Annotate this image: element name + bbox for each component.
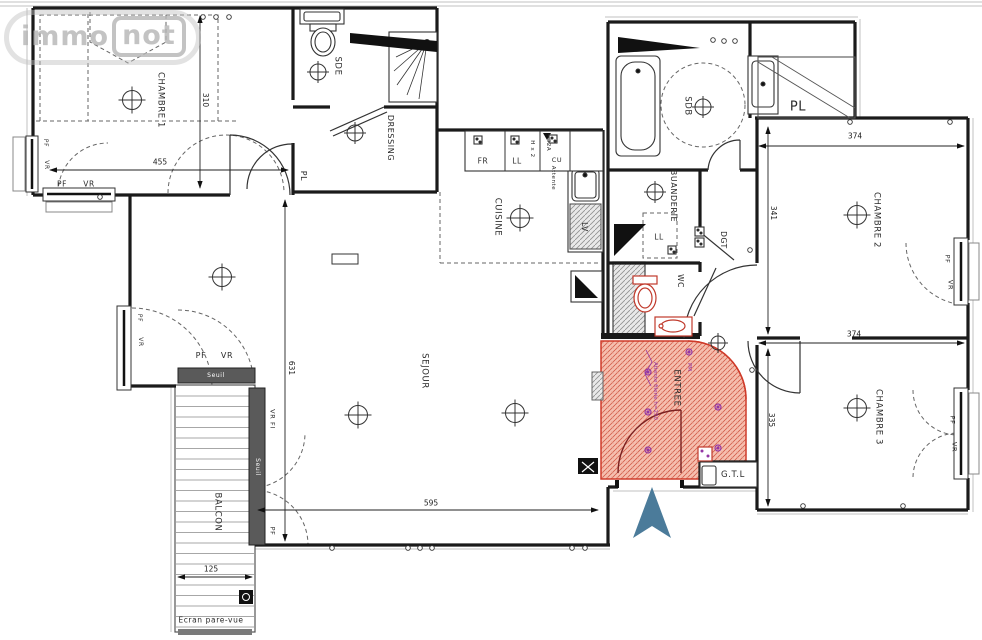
dim-chambre3-depth: 335 [767, 413, 775, 427]
room-label-chambre-1: CHAMBRE 1 [156, 72, 165, 128]
note-attente: Attente [549, 166, 555, 191]
room-label-cuisine: CUISINE [493, 198, 502, 237]
window-label-pf: PF [196, 352, 207, 360]
window-label-vr: VR [137, 337, 143, 346]
room-label-sejour: SEJOUR [420, 353, 429, 389]
closet-label-pl-right: PL [790, 101, 806, 114]
appliance-label-ll-cuisine: LL [512, 157, 522, 165]
floorplan-drawing [0, 0, 982, 640]
room-label-wc: WC [676, 274, 684, 288]
ecran-pare-vue-screen [178, 629, 252, 635]
appliance-label-fr: FR [478, 157, 489, 165]
dim-chambre2-depth: 341 [769, 206, 777, 220]
seuil-label-top: Seuil [207, 373, 225, 379]
closet-label-pl-left: PL [299, 171, 307, 181]
window-label-vr-fi: VR FI [269, 409, 276, 429]
electrical-panel-icon [578, 458, 598, 474]
dim-chambre2-width: 374 [848, 132, 862, 140]
watermark-immo: immo [21, 21, 109, 52]
window-label-pf: PF [949, 416, 956, 425]
ecran-pare-vue-label: Ecran pare-vue [178, 616, 243, 624]
window-label-vr: VR [221, 352, 233, 360]
dim-sejour-depth: 631 [287, 361, 295, 375]
balcony-vent-icon [239, 590, 253, 604]
technical-duct-small [592, 372, 603, 400]
note-32a: 32A [544, 139, 550, 152]
north-arrow-icon [633, 487, 671, 538]
gtl-label: G.T.L [721, 471, 745, 480]
window-label-vr: VR [83, 180, 95, 188]
window-label-vr: VR [951, 442, 958, 452]
room-label-chambre-3: CHAMBRE 3 [874, 389, 883, 445]
appliance-label-ll-buanderie: LL [654, 233, 664, 241]
wall-wedge-sdb [618, 37, 700, 53]
dim-chambre1-width: 455 [153, 158, 167, 166]
window-label-pf: PF [42, 139, 48, 147]
note-attente-filerie: Attente filerie h=250 [651, 362, 657, 420]
room-label-dressing: DRESSING [386, 115, 394, 161]
window-label-pf: PF [57, 180, 67, 188]
room-label-balcon: BALCON [213, 493, 222, 532]
floorplan-page: CHAMBRE 1 SDE DRESSING PL CUISINE SEJOUR… [0, 0, 982, 640]
room-label-sdb: SDB [683, 96, 692, 116]
dim-sejour-width: 595 [424, 499, 438, 507]
dim-chambre1-depth: 310 [201, 93, 209, 107]
room-label-chambre-2: CHAMBRE 2 [872, 192, 881, 248]
note-pm: PM [685, 363, 691, 371]
window-label-pf: PF [136, 314, 142, 322]
walls [33, 8, 968, 545]
red-junction-box [698, 447, 712, 461]
fixtures [300, 9, 855, 302]
wc-toilet-tank [633, 276, 657, 284]
window-label-pf: PF [944, 255, 951, 264]
window-label-pf-balcony: PF [269, 527, 276, 536]
note-hx2: H x 2 [528, 140, 534, 157]
seuil-label-right: Seuil [254, 458, 260, 476]
dim-balcon-width: 125 [204, 565, 218, 573]
room-label-dgt: DGT [719, 231, 727, 249]
room-label-sde: SDE [333, 56, 342, 75]
watermark-not: not [112, 16, 186, 57]
immonot-watermark: immo not [4, 10, 201, 65]
dim-chambre3-width: 374 [847, 330, 861, 338]
ceiling-fixture-bar [332, 254, 358, 264]
appliance-label-cu: CU [552, 157, 563, 164]
wall-wedge-buanderie [614, 224, 646, 256]
room-label-buanderie: BUANDERIE [669, 170, 677, 222]
room-label-entree: ENTREE [672, 369, 681, 406]
facade-lines [0, 2, 982, 632]
appliance-label-lv: LV [580, 222, 588, 232]
entree-zone [601, 341, 746, 479]
window-label-vr: VR [947, 280, 954, 290]
window-label-vr: VR [43, 160, 49, 169]
